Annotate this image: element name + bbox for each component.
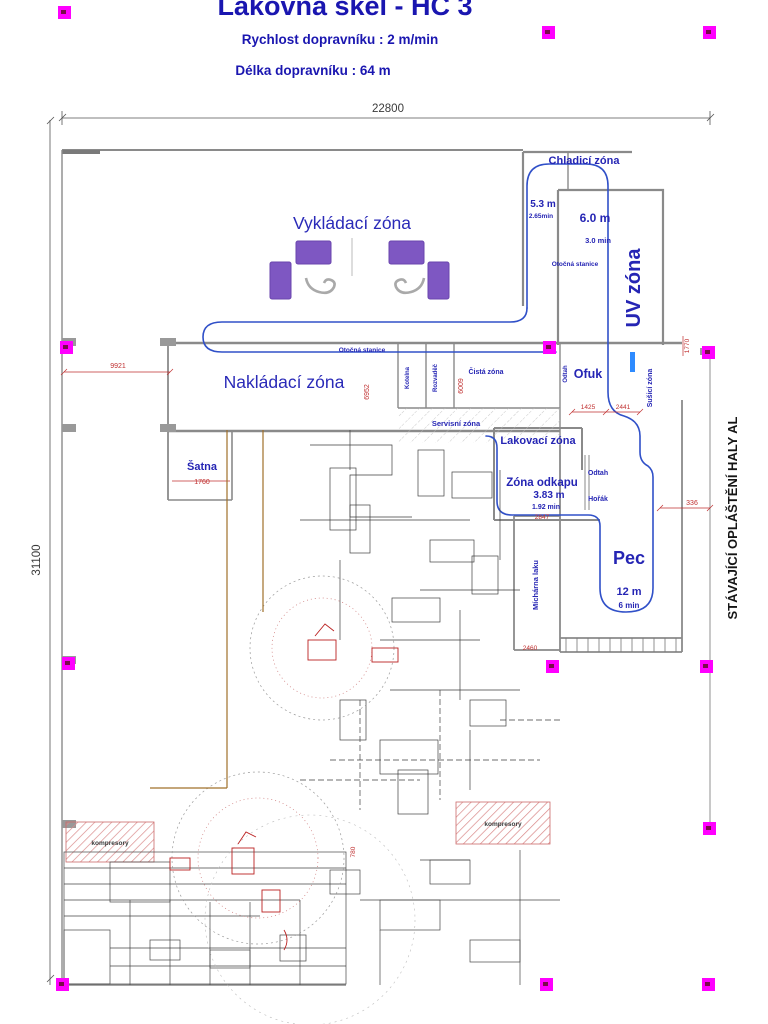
dim-2441: 2441 xyxy=(616,404,631,411)
zone-label-lakovaci: Lakovací zóna xyxy=(500,435,576,447)
compressor-strip-left: kompresory xyxy=(66,822,154,862)
label-kompresory-left: kompresory xyxy=(91,840,129,847)
label-kotelna: Kotelna xyxy=(405,366,411,389)
zone-label-pec: Pec xyxy=(613,548,645,568)
zone-label-servisni: Servisní zóna xyxy=(432,419,481,428)
machinery-linework-upper xyxy=(300,430,520,700)
dim-1425: 1425 xyxy=(581,404,596,411)
lifting-hook-icon xyxy=(306,278,424,293)
dim-780: 780 xyxy=(350,846,357,857)
dim-total-height: 31100 xyxy=(31,544,43,575)
detail-dimension-lines xyxy=(61,336,713,511)
zone-label-susici: Sušicí zóna xyxy=(647,369,654,408)
page-title: Lakovna skel - HC 3 xyxy=(217,0,472,21)
label-odtah-odkap: Odtah xyxy=(588,470,608,477)
oven-comb-ticks xyxy=(566,638,676,652)
measure-chladici-length: 5.3 m xyxy=(530,199,556,210)
zone-label-chladici: Chladicí zóna xyxy=(549,155,621,167)
dim-336: 336 xyxy=(686,500,698,507)
zone-label-micharna: Míchárna laku xyxy=(531,560,540,610)
label-kompresory-right: kompresory xyxy=(484,821,522,828)
floor-plan-canvas: Lakovna skel - HC 3 Rychlost dopravníku … xyxy=(0,0,768,1024)
label-rozvadec: Rozvaděč xyxy=(433,363,439,392)
robot-glyphs xyxy=(170,624,398,950)
measure-odkap-length: 3.83 m xyxy=(533,490,564,501)
measure-uv-length: 6.0 m xyxy=(580,211,611,225)
zone-label-nakladaci: Nakládací zóna xyxy=(224,372,345,392)
compressor-strip-right: kompresory xyxy=(456,802,550,844)
machinery-linework-mid xyxy=(300,690,560,814)
dim-1770: 1770 xyxy=(684,338,691,353)
zone-label-uv: UV zóna xyxy=(623,248,645,328)
label-otocna-stanice-uv: Otočná stanice xyxy=(552,261,599,268)
dim-6952: 6952 xyxy=(364,384,371,400)
dim-2847: 2847 xyxy=(535,514,550,521)
grid-markers xyxy=(56,6,716,991)
measure-pec-length: 12 m xyxy=(616,586,641,598)
dim-6009: 6009 xyxy=(458,378,465,394)
zone-label-satna: Šatna xyxy=(187,460,218,473)
dim-2460: 2460 xyxy=(523,645,538,652)
measure-uv-time: 3.0 min xyxy=(585,236,611,245)
zone-label-ofuk: Ofuk xyxy=(574,367,603,381)
measure-chladici-time: 2.65min xyxy=(529,213,553,220)
cladding-note: STÁVAJÍCÍ OPLÁŠTĚNÍ HALY AL xyxy=(725,416,740,619)
zone-label-vykladaci: Vykládací zóna xyxy=(293,213,411,233)
pallet-blocks xyxy=(270,241,449,299)
zone-label-odkap: Zóna odkapu xyxy=(506,477,578,489)
conveyor-length-note: Délka dopravníku : 64 m xyxy=(235,63,390,78)
label-otocna-stanice-nakladaci: Otočná stanice xyxy=(339,347,386,354)
machinery-linework-bottom xyxy=(64,850,560,985)
floor-plan-page: Lakovna skel - HC 3 Rychlost dopravníku … xyxy=(0,0,768,1024)
conveyor-section-tick xyxy=(630,352,635,372)
robot-reach-arcs xyxy=(172,576,415,1024)
conveyor-speed-note: Rychlost dopravníku : 2 m/min xyxy=(242,32,439,47)
measure-odkap-time: 1.92 min xyxy=(532,504,560,511)
dim-9921: 9921 xyxy=(110,363,126,370)
zone-label-cista: Čistá zóna xyxy=(468,367,503,376)
dim-total-width: 22800 xyxy=(372,103,404,115)
label-horak: Hořák xyxy=(588,496,608,503)
label-odtah-ofuk: Odtah xyxy=(563,365,569,383)
dim-1760: 1760 xyxy=(194,479,210,486)
measure-pec-time: 6 min xyxy=(619,601,640,610)
